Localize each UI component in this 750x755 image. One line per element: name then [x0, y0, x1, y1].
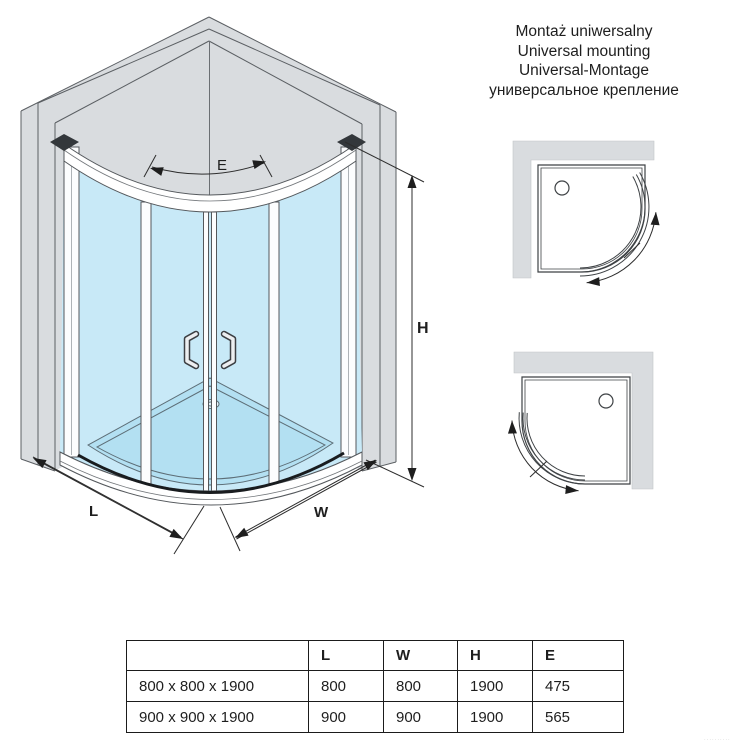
title-line-de: Universal-Montage [464, 61, 704, 81]
spec-table-header-row: L W H E [127, 641, 624, 671]
table-cell: 900 [309, 702, 384, 733]
title-line-pl: Montaż uniwersalny [464, 22, 704, 42]
header-h: H [458, 641, 533, 671]
top-view-mounting-left [513, 141, 660, 287]
table-cell: 475 [533, 671, 624, 702]
drain-plan [599, 394, 613, 408]
drain-plan [555, 181, 569, 195]
table-cell: 1900 [458, 671, 533, 702]
spec-table: L W H E 800 x 800 x 1900 800 800 1900 47… [126, 640, 624, 733]
title-line-en: Universal mounting [464, 42, 704, 62]
tray-plan [522, 377, 630, 484]
header-l: L [309, 641, 384, 671]
diagram-canvas: E H L W [0, 0, 750, 750]
dimension-label-l: L [89, 503, 98, 520]
spec-table-row: 900 x 900 x 1900 900 900 1900 565 [127, 702, 624, 733]
fine-print-illegible: ·········· [704, 737, 748, 743]
dimension-label-h: H [417, 320, 429, 337]
isometric-shower-drawing: E H L W [21, 17, 429, 554]
size-label-cell: 900 x 900 x 1900 [127, 702, 309, 733]
spec-table-row: 800 x 800 x 1900 800 800 1900 475 [127, 671, 624, 702]
size-label-cell: 800 x 800 x 1900 [127, 671, 309, 702]
title-line-ru: универсальное крепление [464, 81, 704, 101]
dimension-label-w: W [314, 504, 329, 521]
product-diagram-page: E H L W [0, 0, 750, 750]
table-cell: 565 [533, 702, 624, 733]
table-cell: 1900 [458, 702, 533, 733]
top-view-mounting-right [508, 352, 653, 495]
title-block: Montaż uniwersalny Universal mounting Un… [464, 22, 704, 100]
header-w: W [384, 641, 458, 671]
header-e: E [533, 641, 624, 671]
table-cell: 900 [384, 702, 458, 733]
table-cell: 800 [384, 671, 458, 702]
header-empty [127, 641, 309, 671]
dimension-label-e: E [217, 157, 227, 174]
table-cell: 800 [309, 671, 384, 702]
